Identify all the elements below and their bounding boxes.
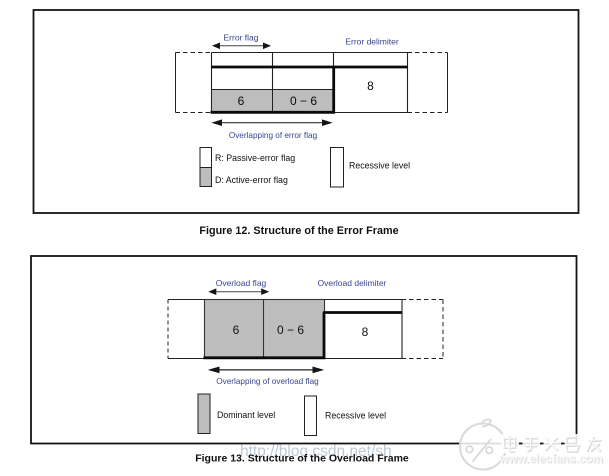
svg-text:Error flag: Error flag xyxy=(224,33,259,43)
svg-text:8: 8 xyxy=(367,79,374,93)
svg-text:Recessive level: Recessive level xyxy=(325,410,386,420)
svg-text:D: Active-error flag: D: Active-error flag xyxy=(215,175,288,185)
svg-text:Recessive level: Recessive level xyxy=(349,161,410,171)
svg-text:R: Passive-error flag: R: Passive-error flag xyxy=(215,153,295,163)
svg-text:Error delimiter: Error delimiter xyxy=(345,37,399,47)
svg-text:Overload delimiter: Overload delimiter xyxy=(318,278,387,288)
svg-text:0 − 6: 0 − 6 xyxy=(290,94,317,108)
svg-text:Overload flag: Overload flag xyxy=(216,278,267,288)
svg-text:Overlapping of error flag: Overlapping of error flag xyxy=(229,131,318,140)
svg-text:6: 6 xyxy=(233,323,240,337)
svg-text:8: 8 xyxy=(362,325,369,339)
svg-text:6: 6 xyxy=(238,94,245,108)
svg-text:Figure 13. Structure of the Ov: Figure 13. Structure of the Overload Fra… xyxy=(195,453,409,465)
svg-text:0 − 6: 0 − 6 xyxy=(277,323,304,337)
svg-text:Overlapping of overload flag: Overlapping of overload flag xyxy=(216,377,319,386)
svg-text:Figure 12. Structure of the Er: Figure 12. Structure of the Error Frame xyxy=(199,225,398,237)
svg-text:www.elecfans.com: www.elecfans.com xyxy=(499,453,603,466)
svg-text:Dominant level: Dominant level xyxy=(217,410,275,420)
